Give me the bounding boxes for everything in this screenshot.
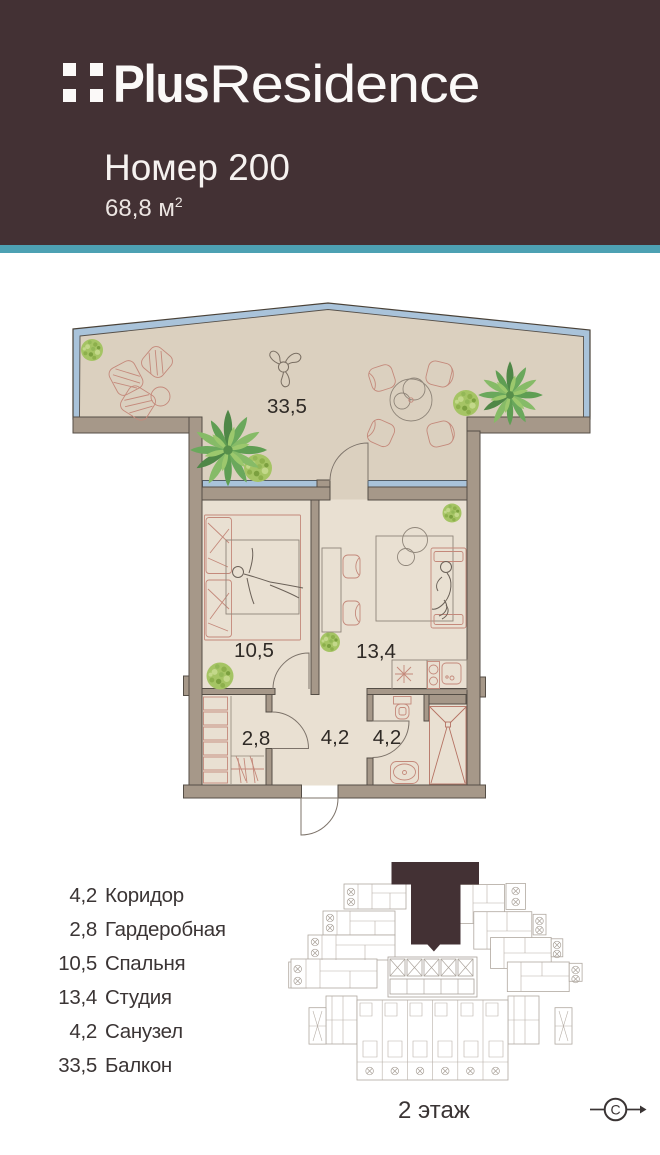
svg-text:10,5: 10,5 xyxy=(234,639,274,662)
svg-text:33,5: 33,5 xyxy=(267,395,307,418)
svg-text:13,4: 13,4 xyxy=(356,640,396,663)
svg-text:4,2: 4,2 xyxy=(321,726,350,749)
svg-text:2,8: 2,8 xyxy=(242,727,271,750)
svg-text:C: C xyxy=(610,1102,620,1118)
svg-text:4,2: 4,2 xyxy=(373,726,402,749)
